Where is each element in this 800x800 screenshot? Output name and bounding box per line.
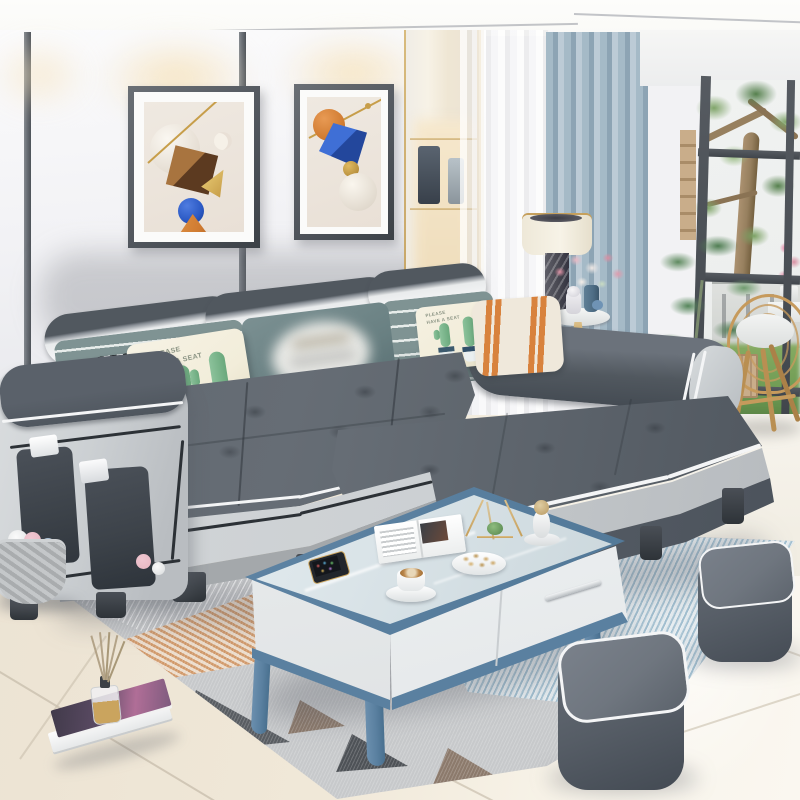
sofa-foot (96, 592, 126, 618)
pocket-magazine (29, 434, 60, 458)
reed-diffuser-bottle (90, 685, 122, 726)
lamp-shade-top (530, 214, 582, 222)
wall-art-frame-right (294, 84, 394, 240)
terrarium-plant (487, 522, 503, 535)
mini-figurine-head (534, 500, 549, 515)
living-room-photo: PLEASEHAVE A SEAT PLEASEHAVE A SEAT (0, 0, 800, 800)
ottoman-top-back (697, 539, 797, 610)
storage-pocket (84, 466, 156, 590)
floor-yarn-pink (136, 554, 151, 569)
magazine-photo (420, 520, 449, 543)
art-crescent (214, 132, 232, 150)
rattan-chair-cushion (736, 314, 794, 348)
abstract-art-right (307, 97, 381, 227)
floor-yarn-white (152, 562, 165, 575)
blue-pompon (592, 300, 603, 310)
terrarium-base (477, 536, 513, 538)
cookies (456, 550, 504, 572)
pocket-magazine (79, 458, 110, 484)
wall-art-frame-left (128, 86, 260, 248)
cactus-body (439, 323, 451, 348)
latte-coffee (400, 568, 423, 578)
sofa-foot (722, 488, 744, 524)
bear-figurine-head (567, 286, 580, 297)
ottoman-top-front (555, 629, 692, 726)
woven-basket (0, 542, 66, 604)
art-gold-dot (365, 103, 371, 109)
sofa-foot (640, 526, 662, 560)
cactus-arm (433, 330, 440, 341)
cabinet-decor-vase (418, 146, 440, 204)
phone-screen (312, 555, 341, 577)
magazine-text-lines (380, 527, 417, 557)
art-white-sphere (339, 173, 377, 211)
abstract-art-left (144, 102, 244, 232)
